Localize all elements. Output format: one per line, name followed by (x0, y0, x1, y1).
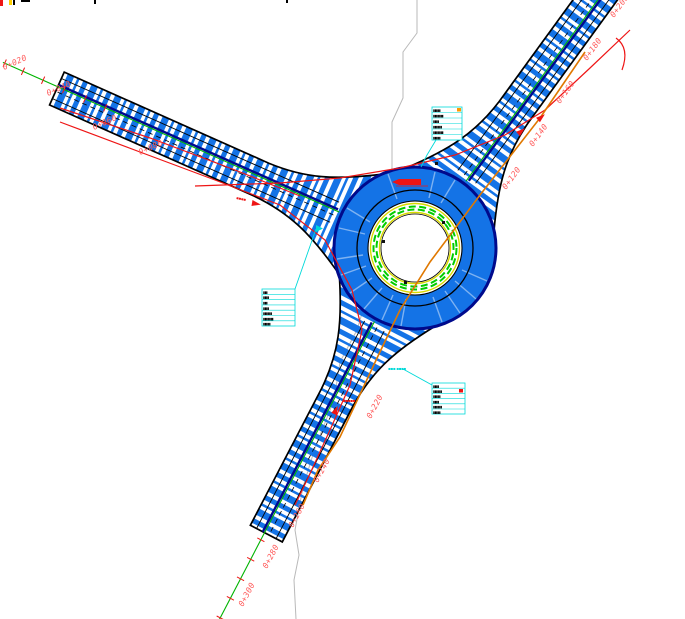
central-island (368, 201, 462, 295)
cad-viewport[interactable]: 0+020 0+040 0+060 0+080 0+120 0+140 0+16… (0, 0, 685, 619)
road-band (35, 39, 382, 273)
leader-line (295, 229, 316, 289)
roundabout-plan-drawing: 0+020 0+040 0+060 0+080 0+120 0+140 0+16… (0, 0, 685, 619)
table-row: ▮▮▮▮▮ (263, 322, 271, 326)
table-row: ▮▮▮ (263, 290, 268, 294)
table-row: ▮▮▮▮▮ (433, 109, 441, 113)
table-row: ▮▮▮▮▮▮ (433, 405, 442, 409)
table-row: ▮▮▮▮▮ (433, 136, 441, 140)
road-annotation-cyan: ▪▪▪ ▪▪▪▪ (388, 366, 406, 371)
table-row: ▮▮▮▮▮▮ (433, 125, 442, 129)
table-row: ▮▮▮▮ (433, 400, 439, 404)
alignment-centerline (3, 62, 339, 212)
table-row: ▮▮▮▮▮▮▮ (263, 317, 274, 321)
table-row: ▮▮▮▮▮▮ (263, 312, 272, 316)
station-ticks (217, 538, 265, 619)
table-row: ▮▮▮▮▮▮ (433, 390, 442, 394)
table-row: ▮▮▮▮▮ (433, 395, 441, 399)
table-row: ▮▮▮▮▮▮▮ (433, 114, 444, 118)
table-row: ▮▮▮ (263, 301, 268, 305)
table-row: ▮▮▮▮ (263, 306, 269, 310)
top-edge-clipped-marks (0, 0, 288, 6)
table-row: ▮▮▮▮ (433, 384, 439, 388)
road-annotation-red: ▪▪▪▪▪ (343, 398, 356, 403)
leader-line (403, 369, 432, 385)
road-annotation-red: ▪▪▪▪ (236, 195, 247, 202)
station-label: 0+300 (237, 581, 257, 608)
roundabout (334, 167, 496, 329)
annotation-table-bottom: ▪▪▪ ▪▪▪▪ ▮▮▮▮ ▮▮▮▮▮▮ ▮▮▮▮▮ ▮▮▮▮ ▮▮▮▮▮▮ ▮… (388, 366, 465, 414)
station-label: 0+220 (365, 393, 385, 420)
arrow-icon (251, 200, 261, 207)
station-label: 0+140 (527, 122, 549, 148)
station-label: 0+280 (261, 543, 281, 570)
road-arm-left (0, 15, 382, 273)
marker-cell-red (459, 389, 463, 393)
table-row: ▮▮▮▮ (263, 296, 269, 300)
marker-cell-orange (457, 108, 461, 112)
table-row: ▮▮▮▮▮▮▮ (433, 131, 444, 135)
table-row: ▮▮▮▮ (433, 120, 439, 124)
table-row: ▮▮▮▮▮ (433, 410, 441, 414)
